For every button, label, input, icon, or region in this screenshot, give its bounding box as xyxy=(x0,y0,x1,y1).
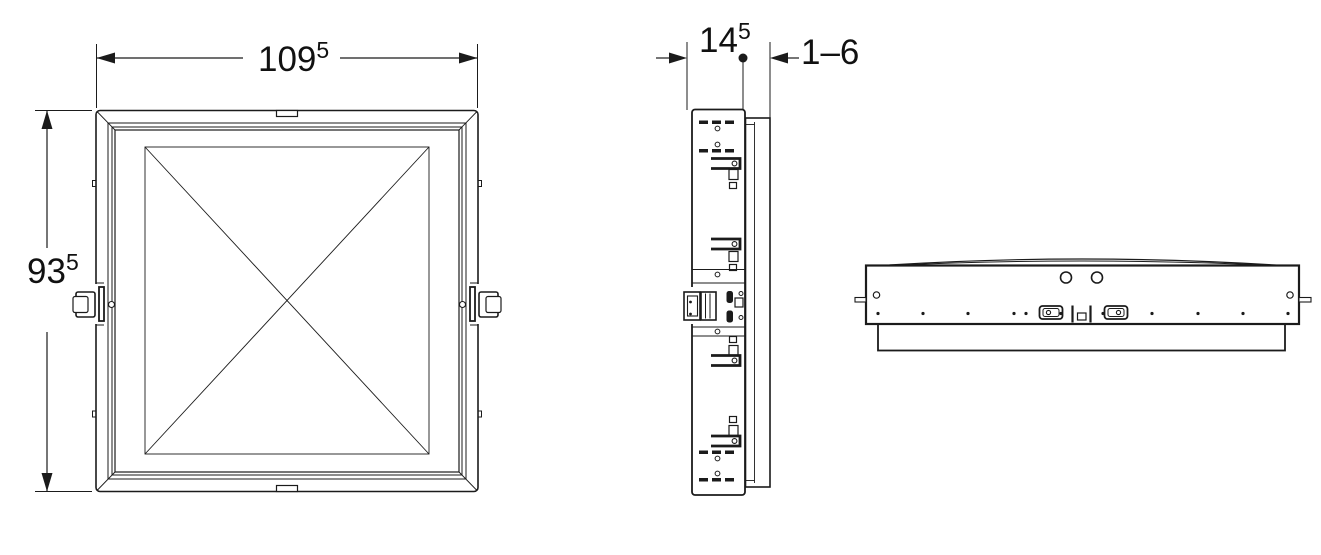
width-arrow-right xyxy=(459,53,478,64)
side-latch-assembly xyxy=(684,287,743,324)
depth-arrow xyxy=(669,53,687,64)
front-top-tab xyxy=(277,111,298,117)
dimension-depth: 145 xyxy=(656,18,751,110)
height-arrow-bottom xyxy=(42,473,53,492)
plan-door-panel xyxy=(878,324,1285,351)
side-profile-view xyxy=(684,110,770,496)
width-dimension-label: 1095 xyxy=(258,37,329,79)
dimension-tile-thickness: 1–6 xyxy=(770,33,859,122)
height-arrow-top xyxy=(42,111,53,130)
tile-dimension-label: 1–6 xyxy=(801,33,859,72)
front-door-x-panel xyxy=(145,147,429,454)
front-edge-clips xyxy=(93,181,482,418)
tile-arrow xyxy=(770,53,788,64)
side-door-panel xyxy=(746,118,771,487)
drawing-svg: 1095 935 xyxy=(0,0,1321,555)
width-arrow-left xyxy=(97,53,116,64)
height-dimension-label: 935 xyxy=(27,249,79,291)
plan-view xyxy=(855,259,1311,351)
dimension-width: 1095 xyxy=(97,37,478,108)
front-bottom-tab xyxy=(277,486,298,492)
technical-drawing-canvas: 1095 935 xyxy=(0,0,1321,555)
plan-body xyxy=(866,266,1299,325)
front-view xyxy=(73,111,501,492)
depth-reference-dot xyxy=(739,54,748,63)
